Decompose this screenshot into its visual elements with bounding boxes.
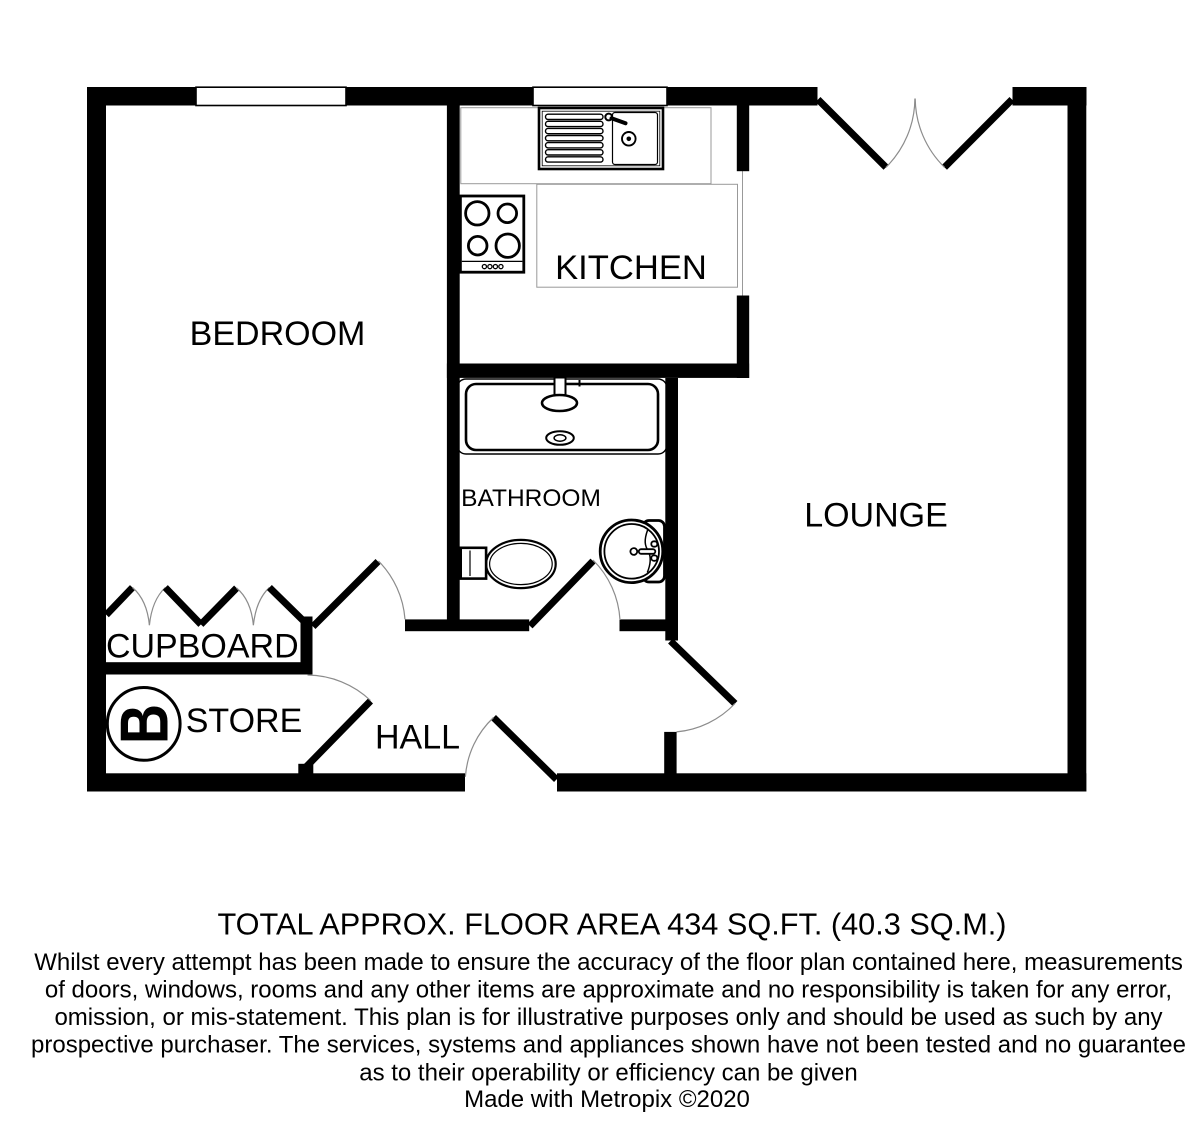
svg-text:CUPBOARD: CUPBOARD	[106, 627, 299, 665]
svg-text:omission, or mis-statement. Th: omission, or mis-statement. This plan is…	[54, 1004, 1162, 1031]
svg-text:KITCHEN: KITCHEN	[555, 249, 707, 287]
svg-text:Made with Metropix ©2020: Made with Metropix ©2020	[464, 1086, 750, 1113]
svg-text:Whilst every attempt has been: Whilst every attempt has been made to en…	[34, 949, 1183, 976]
svg-text:TOTAL APPROX. FLOOR AREA 434 S: TOTAL APPROX. FLOOR AREA 434 SQ.FT. (40.…	[217, 907, 1006, 942]
svg-text:BEDROOM: BEDROOM	[190, 315, 366, 353]
svg-text:prospective purchaser. The ser: prospective purchaser. The services, sys…	[31, 1032, 1186, 1059]
svg-text:B: B	[107, 704, 182, 744]
svg-text:HALL: HALL	[375, 718, 460, 756]
svg-text:LOUNGE: LOUNGE	[804, 496, 948, 534]
svg-text:as to their operability or eff: as to their operability or efficiency ca…	[359, 1060, 858, 1087]
svg-text:STORE: STORE	[186, 702, 303, 740]
svg-text:BATHROOM: BATHROOM	[461, 485, 601, 512]
svg-text:of doors, windows, rooms and a: of doors, windows, rooms and any other i…	[45, 977, 1172, 1004]
